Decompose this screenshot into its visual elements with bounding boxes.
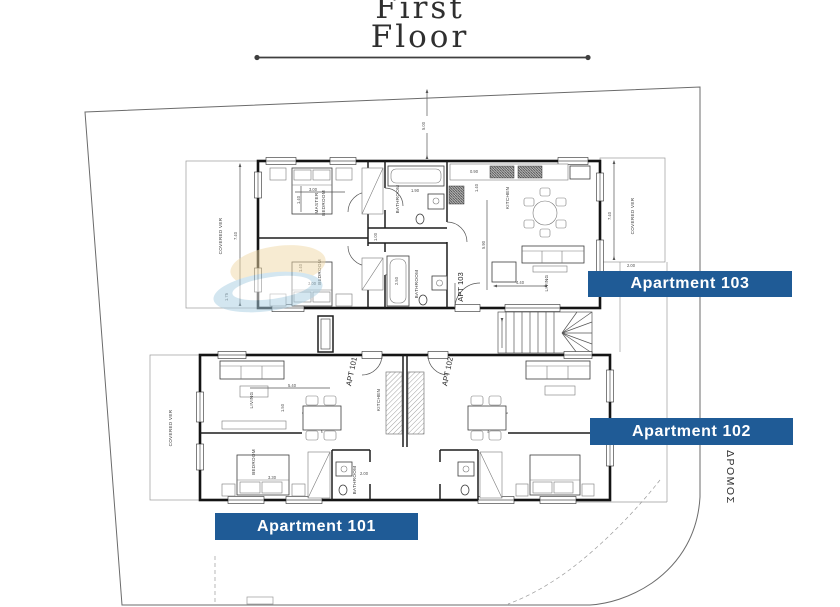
dim-bathroom-width: 2.00 — [360, 471, 369, 476]
dim-bath-top: 1.90 — [411, 188, 420, 193]
kitchen-upper: KITCHEN 0.90 1.40 5.90 — [449, 164, 590, 290]
dim-bath-bottom: 2.50 — [394, 276, 399, 285]
apt103-tag: APT 103 — [456, 272, 465, 301]
dim-master-bed: 1.40 — [296, 195, 301, 204]
dim-living-depth: 5.90 — [481, 240, 486, 249]
bathroom-top: BATHROOM 1.90 — [388, 166, 444, 224]
lower-building: COVERED VER KITCHEN — [150, 352, 614, 504]
bedroom-101-label: BEDROOM — [251, 449, 256, 475]
pier-column — [318, 316, 333, 352]
side-table — [545, 386, 575, 395]
toilet — [419, 295, 427, 305]
kitchen-counter-102 — [408, 372, 424, 434]
fridge — [570, 166, 590, 179]
nightstand — [292, 484, 305, 496]
dim-bedroom101-width: 3.30 — [268, 475, 277, 480]
toilet — [339, 485, 347, 495]
nightstand — [582, 484, 594, 496]
tv-console — [222, 421, 286, 429]
nightstand — [222, 484, 235, 496]
upper-right-veranda-label: COVERED VER — [630, 197, 635, 234]
underline-dot-right — [585, 55, 590, 60]
setback-curve — [508, 480, 660, 604]
title-underline — [254, 55, 590, 60]
dim-upper-left-veranda-depth: 7.40 — [233, 231, 238, 240]
dim-living101-width: 5.40 — [288, 383, 297, 388]
console — [533, 266, 567, 272]
bathroom-top-label: BATHROOM — [395, 185, 400, 214]
dim-living101-depth: 1.50 — [280, 403, 285, 412]
living-upper-label: LIVING — [544, 274, 549, 291]
gate-mark — [247, 597, 273, 604]
apt102-tag: APT 102 — [440, 356, 455, 387]
nightstand — [516, 484, 528, 496]
dining-table — [533, 201, 557, 225]
dining-table — [303, 406, 341, 430]
page-title: First Floor — [0, 0, 840, 52]
underline-dot-left — [254, 55, 259, 60]
apartment-103-label: Apartment 103 — [588, 271, 792, 297]
page-title-line2: Floor — [0, 23, 840, 52]
nightstand — [336, 294, 352, 306]
dim-setback: 5.00 — [421, 121, 426, 130]
kitchen-upper-label: KITCHEN — [505, 187, 510, 209]
setback-dimension: 5.00 — [421, 91, 427, 157]
upper-left-veranda-label: COVERED VER — [218, 217, 223, 254]
toilet — [416, 214, 424, 224]
road-label: ΔΡΟΜΟΣ — [724, 450, 736, 505]
living-101-label: LIVING — [249, 391, 254, 408]
bathroom-101-label: BATHROOM — [352, 466, 357, 495]
stove — [518, 166, 542, 178]
dim-hall: 1.00 — [373, 232, 378, 241]
dim-master-width: 3.00 — [309, 187, 318, 192]
master-bedroom-label-1: MASTER — [314, 192, 319, 213]
stairwell — [498, 312, 592, 353]
kitchen-counter-101 — [386, 372, 402, 434]
sofa — [220, 361, 284, 379]
dim-kitchen-front: 0.90 — [470, 169, 479, 174]
apt101-tag: APT 101 — [344, 356, 359, 387]
dim-living-width: 4.40 — [516, 280, 525, 285]
nightstand — [270, 168, 286, 180]
dim-kitchen-depth: 1.40 — [474, 183, 479, 192]
apartment-101-label: Apartment 101 — [215, 513, 418, 540]
master-bedroom-label-2: BEDROOM — [321, 190, 326, 216]
dim-upper-right-veranda-width: 2.00 — [627, 263, 636, 268]
tv-stand — [492, 262, 516, 282]
apartment-102-label: Apartment 102 — [590, 418, 793, 445]
living-upper: LIVING 4.40 APT 103 — [455, 246, 584, 312]
nightstand — [336, 168, 352, 180]
apt102-interior — [440, 361, 610, 500]
sofa — [526, 361, 590, 379]
master-bedroom: MASTER BEDROOM 3.00 1.40 — [270, 168, 383, 216]
sink — [490, 166, 514, 178]
dining-table — [468, 406, 506, 430]
kitchen-101-label: KITCHEN — [376, 389, 381, 411]
lower-left-veranda: COVERED VER — [150, 355, 200, 500]
dim-upper-right-veranda-depth: 7.40 — [607, 211, 612, 220]
pantry — [449, 186, 464, 204]
upper-right-veranda: COVERED VER 7.40 2.00 — [600, 158, 665, 268]
floorplan-svg: 5.00 COVERED VER 7.40 1.75 COVERED VER 7… — [0, 0, 840, 607]
floorplan-stage: 5.00 COVERED VER 7.40 1.75 COVERED VER 7… — [0, 0, 840, 607]
toilet — [461, 485, 469, 495]
bathroom-bottom-label: BATHROOM — [414, 270, 419, 299]
lower-veranda-label: COVERED VER — [168, 409, 173, 446]
sofa — [522, 246, 584, 263]
watermark-logo — [211, 240, 328, 319]
central-core: KITCHEN APT 101 APT 102 — [344, 352, 455, 448]
